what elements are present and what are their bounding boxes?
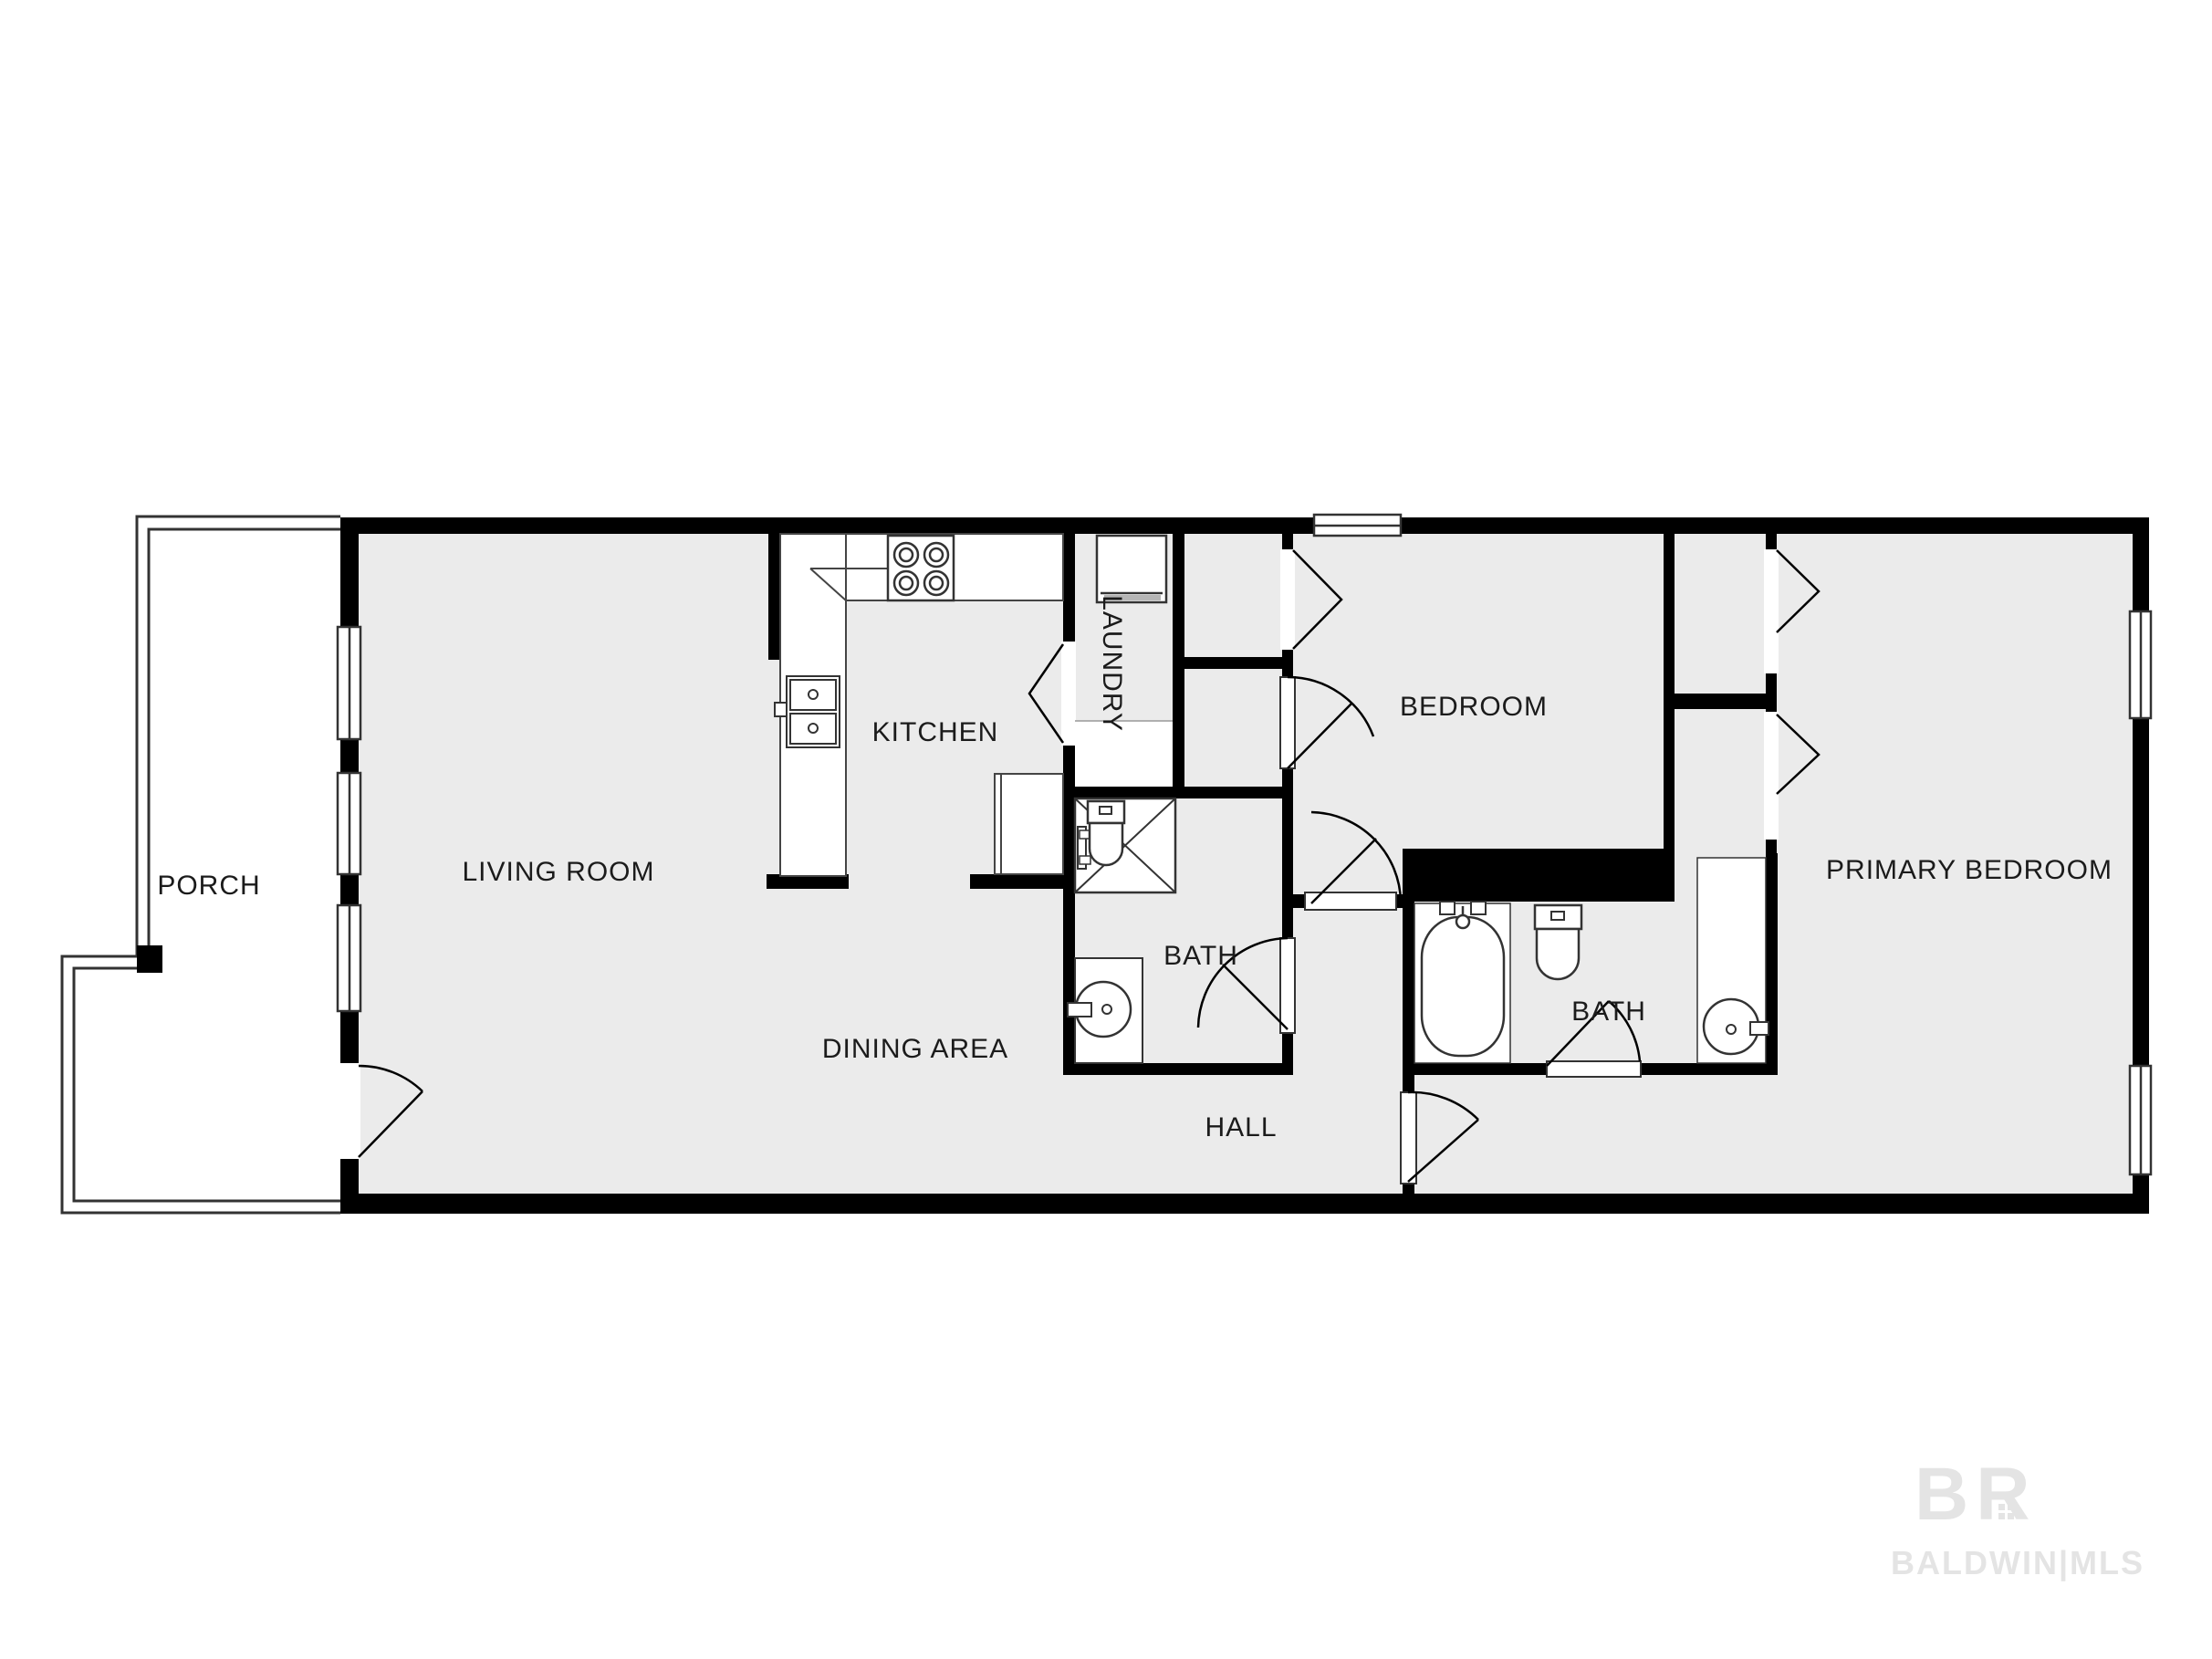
window-icon (338, 905, 360, 1011)
baldwin-mls-logo: BR (1891, 1458, 2192, 1531)
stove-icon (888, 536, 954, 600)
bathroom-sink-icon (1068, 958, 1143, 1063)
logo-house-window-icon (1998, 1504, 2015, 1520)
watermark-text: BALDWIN|MLS (1891, 1544, 2192, 1582)
toilet-icon (1535, 905, 1581, 979)
baldwin-mls-watermark: BR BALDWIN|MLS (1891, 1458, 2192, 1595)
washer-dryer-icon (1097, 536, 1166, 602)
bathtub-icon (1414, 902, 1510, 1063)
window-icon (2130, 1066, 2151, 1174)
room-label-dining-area: DINING AREA (822, 1034, 1008, 1065)
room-label-bedroom: BEDROOM (1400, 692, 1548, 723)
window-icon (338, 627, 360, 739)
floorplan-page: PORCH LIVING ROOM KITCHEN LAUNDRY BEDROO… (0, 0, 2212, 1659)
logo-letters: BR (1915, 1453, 2037, 1536)
porch-post (137, 945, 162, 973)
refrigerator-icon (995, 774, 1063, 874)
floorplan-drawing (0, 0, 2212, 1659)
porch-outline (62, 516, 340, 1213)
window-icon (1314, 515, 1401, 536)
bathroom-sink-icon (1697, 858, 1769, 1063)
toilet-icon (1088, 801, 1124, 865)
window-icon (338, 773, 360, 874)
window-icon (2130, 611, 2151, 718)
room-label-porch: PORCH (157, 871, 260, 902)
room-label-hall-bath: BATH (1163, 941, 1238, 972)
room-label-primary-bedroom: PRIMARY BEDROOM (1826, 855, 2113, 886)
room-label-primary-bath: BATH (1571, 996, 1646, 1028)
room-label-living-room: LIVING ROOM (462, 857, 654, 888)
room-label-kitchen: KITCHEN (872, 717, 999, 748)
room-label-hall: HALL (1205, 1112, 1277, 1143)
room-label-laundry: LAUNDRY (1096, 595, 1127, 732)
